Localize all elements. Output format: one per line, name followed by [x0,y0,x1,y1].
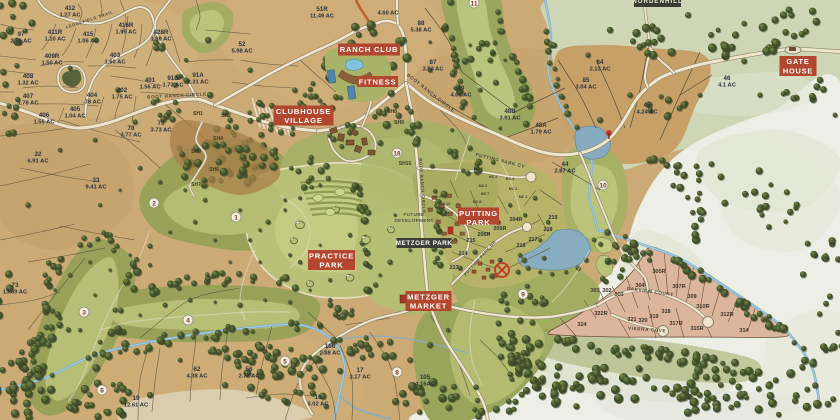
svg-text:SH5: SH5 [191,149,201,155]
svg-text:9: 9 [521,291,525,298]
svg-text:6: 6 [100,387,104,394]
svg-text:METZGER: METZGER [407,292,450,301]
svg-text:SH8: SH8 [387,109,397,115]
svg-text:PUTTING: PUTTING [459,209,498,218]
svg-text:FITNESS: FITNESS [359,77,397,86]
svg-text:SH16: SH16 [399,161,412,167]
svg-text:1: 1 [234,214,238,221]
svg-text:305R: 305R [652,269,665,275]
svg-text:13.69 AC: 13.69 AC [3,290,28,296]
svg-text:310R: 310R [696,304,709,310]
svg-text:303: 303 [614,292,623,298]
svg-text:62: 62 [194,366,201,373]
svg-text:1.88 AC: 1.88 AC [150,37,172,43]
svg-text:MC 3: MC 3 [506,177,515,181]
svg-text:1.79 AC: 1.79 AC [530,130,552,136]
svg-text:1.60 AC: 1.60 AC [104,60,126,66]
svg-text:3: 3 [82,309,86,316]
svg-text:91B: 91B [167,75,179,82]
svg-text:409R: 409R [45,53,60,60]
svg-text:321: 321 [627,317,636,323]
svg-text:213: 213 [450,265,459,271]
svg-text:NORDENHILL: NORDENHILL [632,0,683,5]
svg-text:406: 406 [39,112,50,119]
svg-text:4.38 AC: 4.38 AC [186,374,208,380]
svg-text:3.81 AC: 3.81 AC [499,116,521,122]
svg-text:48B: 48B [504,108,516,115]
svg-text:MARKET: MARKET [410,302,447,311]
svg-text:2.72 AC: 2.72 AC [238,374,260,380]
svg-text:2.87 AC: 2.87 AC [554,169,576,175]
svg-text:CLUBHOUSE: CLUBHOUSE [276,107,331,116]
svg-text:73: 73 [12,282,19,289]
svg-text:219: 219 [549,215,558,221]
svg-text:1.50 AC: 1.50 AC [41,61,63,67]
svg-text:1.95 AC: 1.95 AC [115,30,137,36]
svg-text:407: 407 [23,93,34,100]
svg-text:45: 45 [644,102,651,109]
svg-text:403: 403 [110,52,121,59]
svg-text:56: 56 [246,366,253,373]
svg-text:1.55 AC: 1.55 AC [33,120,55,126]
svg-text:4.01 AC: 4.01 AC [450,93,472,99]
svg-text:217: 217 [529,237,538,243]
svg-text:9.41 AC: 9.41 AC [85,185,107,191]
svg-text:4.60 AC: 4.60 AC [377,11,399,17]
svg-text:78: 78 [128,125,135,132]
svg-text:PARK: PARK [319,261,343,270]
svg-text:214: 214 [459,251,468,257]
svg-text:2: 2 [152,200,156,207]
svg-text:204R: 204R [510,217,523,223]
svg-text:33: 33 [93,177,100,184]
svg-text:11: 11 [471,0,478,7]
svg-text:SH9: SH9 [394,120,404,126]
svg-text:.78 AC: .78 AC [83,100,102,106]
svg-text:44: 44 [562,161,569,168]
svg-text:MC 6: MC 6 [479,184,488,188]
svg-text:SH7: SH7 [191,182,201,188]
svg-text:18: 18 [393,150,401,157]
svg-text:5.98 AC: 5.98 AC [231,49,253,55]
svg-text:46: 46 [724,75,731,82]
svg-text:206R: 206R [478,232,491,238]
svg-text:405: 405 [70,106,81,113]
svg-text:GATE: GATE [786,57,809,66]
svg-text:1.04 AC: 1.04 AC [64,114,86,120]
svg-text:216: 216 [517,243,526,249]
svg-text:5.02 AC: 5.02 AC [307,402,329,408]
svg-text:4.1 AC: 4.1 AC [718,83,737,89]
svg-text:205R: 205R [494,226,507,232]
svg-text:MC 9: MC 9 [433,195,442,199]
svg-text:412: 412 [65,5,76,12]
svg-text:32: 32 [35,151,42,158]
svg-text:105: 105 [420,374,431,381]
svg-text:416R: 416R [119,22,134,29]
svg-text:307R: 307R [672,284,685,290]
svg-text:51R: 51R [316,6,328,13]
svg-text:91A: 91A [192,72,204,79]
svg-text:4.16AC: 4.16AC [415,382,435,388]
svg-text:97: 97 [18,31,25,38]
svg-text:5.38 AC: 5.38 AC [410,28,432,34]
svg-text:SH6: SH6 [209,167,219,173]
svg-text:4.24 AC: 4.24 AC [636,110,658,116]
svg-text:218: 218 [544,227,553,233]
svg-text:3.73 AC: 3.73 AC [150,128,172,134]
svg-text:2.51 AC: 2.51 AC [10,39,32,45]
svg-text:1.27 AC: 1.27 AC [59,13,81,19]
svg-text:401: 401 [145,77,156,84]
svg-text:1.78 AC: 1.78 AC [17,101,39,107]
svg-text:411R: 411R [48,29,63,36]
svg-text:3.53 AC: 3.53 AC [422,67,444,73]
svg-text:MC 5: MC 5 [474,167,483,171]
svg-text:SH2: SH2 [221,113,231,119]
svg-text:1.75 AC: 1.75 AC [111,95,133,101]
svg-text:5: 5 [283,358,287,365]
svg-text:106: 106 [325,343,336,350]
svg-text:FUTURE: FUTURE [403,212,424,217]
svg-text:1.73 AC: 1.73 AC [162,83,184,89]
svg-text:PARK: PARK [466,218,490,227]
svg-text:12.61 AC: 12.61 AC [124,403,149,409]
svg-text:312R: 312R [720,312,733,318]
svg-text:215: 215 [467,238,476,244]
svg-text:84: 84 [597,59,604,66]
svg-text:2.88 AC: 2.88 AC [319,351,341,357]
svg-text:6.91 AC: 6.91 AC [27,159,49,165]
svg-text:402: 402 [117,87,128,94]
svg-text:MC 10: MC 10 [440,202,451,206]
svg-text:52: 52 [239,41,246,48]
svg-text:2.13 AC: 2.13 AC [589,67,611,73]
svg-text:10: 10 [599,182,607,189]
svg-text:HOUSE: HOUSE [783,66,813,75]
svg-text:2.31 AC: 2.31 AC [187,80,209,86]
svg-text:415: 415 [83,31,94,38]
svg-text:404: 404 [87,92,98,99]
svg-text:11.49 AC: 11.49 AC [310,14,335,20]
svg-text:79: 79 [158,120,165,127]
svg-text:MC 2: MC 2 [509,187,518,191]
svg-text:8: 8 [395,369,399,376]
svg-text:16: 16 [315,394,322,401]
svg-text:1.32 AC: 1.32 AC [17,81,39,87]
svg-text:MC 1: MC 1 [519,195,528,199]
svg-text:MC 7: MC 7 [481,192,490,196]
svg-text:VILLAGE: VILLAGE [284,116,323,125]
svg-text:DEVELOPMENT: DEVELOPMENT [394,218,433,223]
svg-text:318: 318 [661,309,670,315]
svg-text:MC 4: MC 4 [489,175,498,179]
svg-text:1.06 AC: 1.06 AC [77,39,99,45]
svg-text:315R: 315R [690,326,703,332]
svg-text:88: 88 [418,20,425,27]
svg-text:1.56 AC: 1.56 AC [139,85,161,91]
svg-text:301: 301 [590,288,599,294]
svg-text:322R: 322R [594,311,607,317]
svg-text:1.10 AC: 1.10 AC [44,37,66,43]
svg-text:3.04 AC: 3.04 AC [575,85,597,91]
svg-text:48A: 48A [535,122,547,129]
svg-text:317R: 317R [669,321,682,327]
svg-text:319: 319 [649,314,658,320]
svg-text:METZGER PARK: METZGER PARK [396,240,453,247]
svg-text:MC 8: MC 8 [473,200,482,204]
svg-text:17: 17 [357,367,364,374]
svg-text:85: 85 [583,77,590,84]
svg-text:3.77 AC: 3.77 AC [120,133,142,139]
svg-text:3.17 AC: 3.17 AC [349,375,371,381]
svg-text:PRACTICE: PRACTICE [309,251,354,260]
svg-text:87: 87 [430,59,437,66]
svg-text:49: 49 [458,85,465,92]
svg-text:SH1: SH1 [193,111,203,117]
svg-text:320: 320 [638,318,647,324]
svg-text:SH4: SH4 [213,136,223,142]
svg-text:324: 324 [577,322,587,328]
svg-text:RANCH CLUB: RANCH CLUB [340,45,399,54]
svg-text:4: 4 [186,317,190,324]
svg-text:428R: 428R [154,29,169,36]
svg-text:302: 302 [602,288,611,294]
svg-text:19: 19 [133,395,140,402]
svg-text:309: 309 [687,294,696,300]
svg-text:408: 408 [23,73,34,80]
svg-text:314: 314 [739,328,749,334]
